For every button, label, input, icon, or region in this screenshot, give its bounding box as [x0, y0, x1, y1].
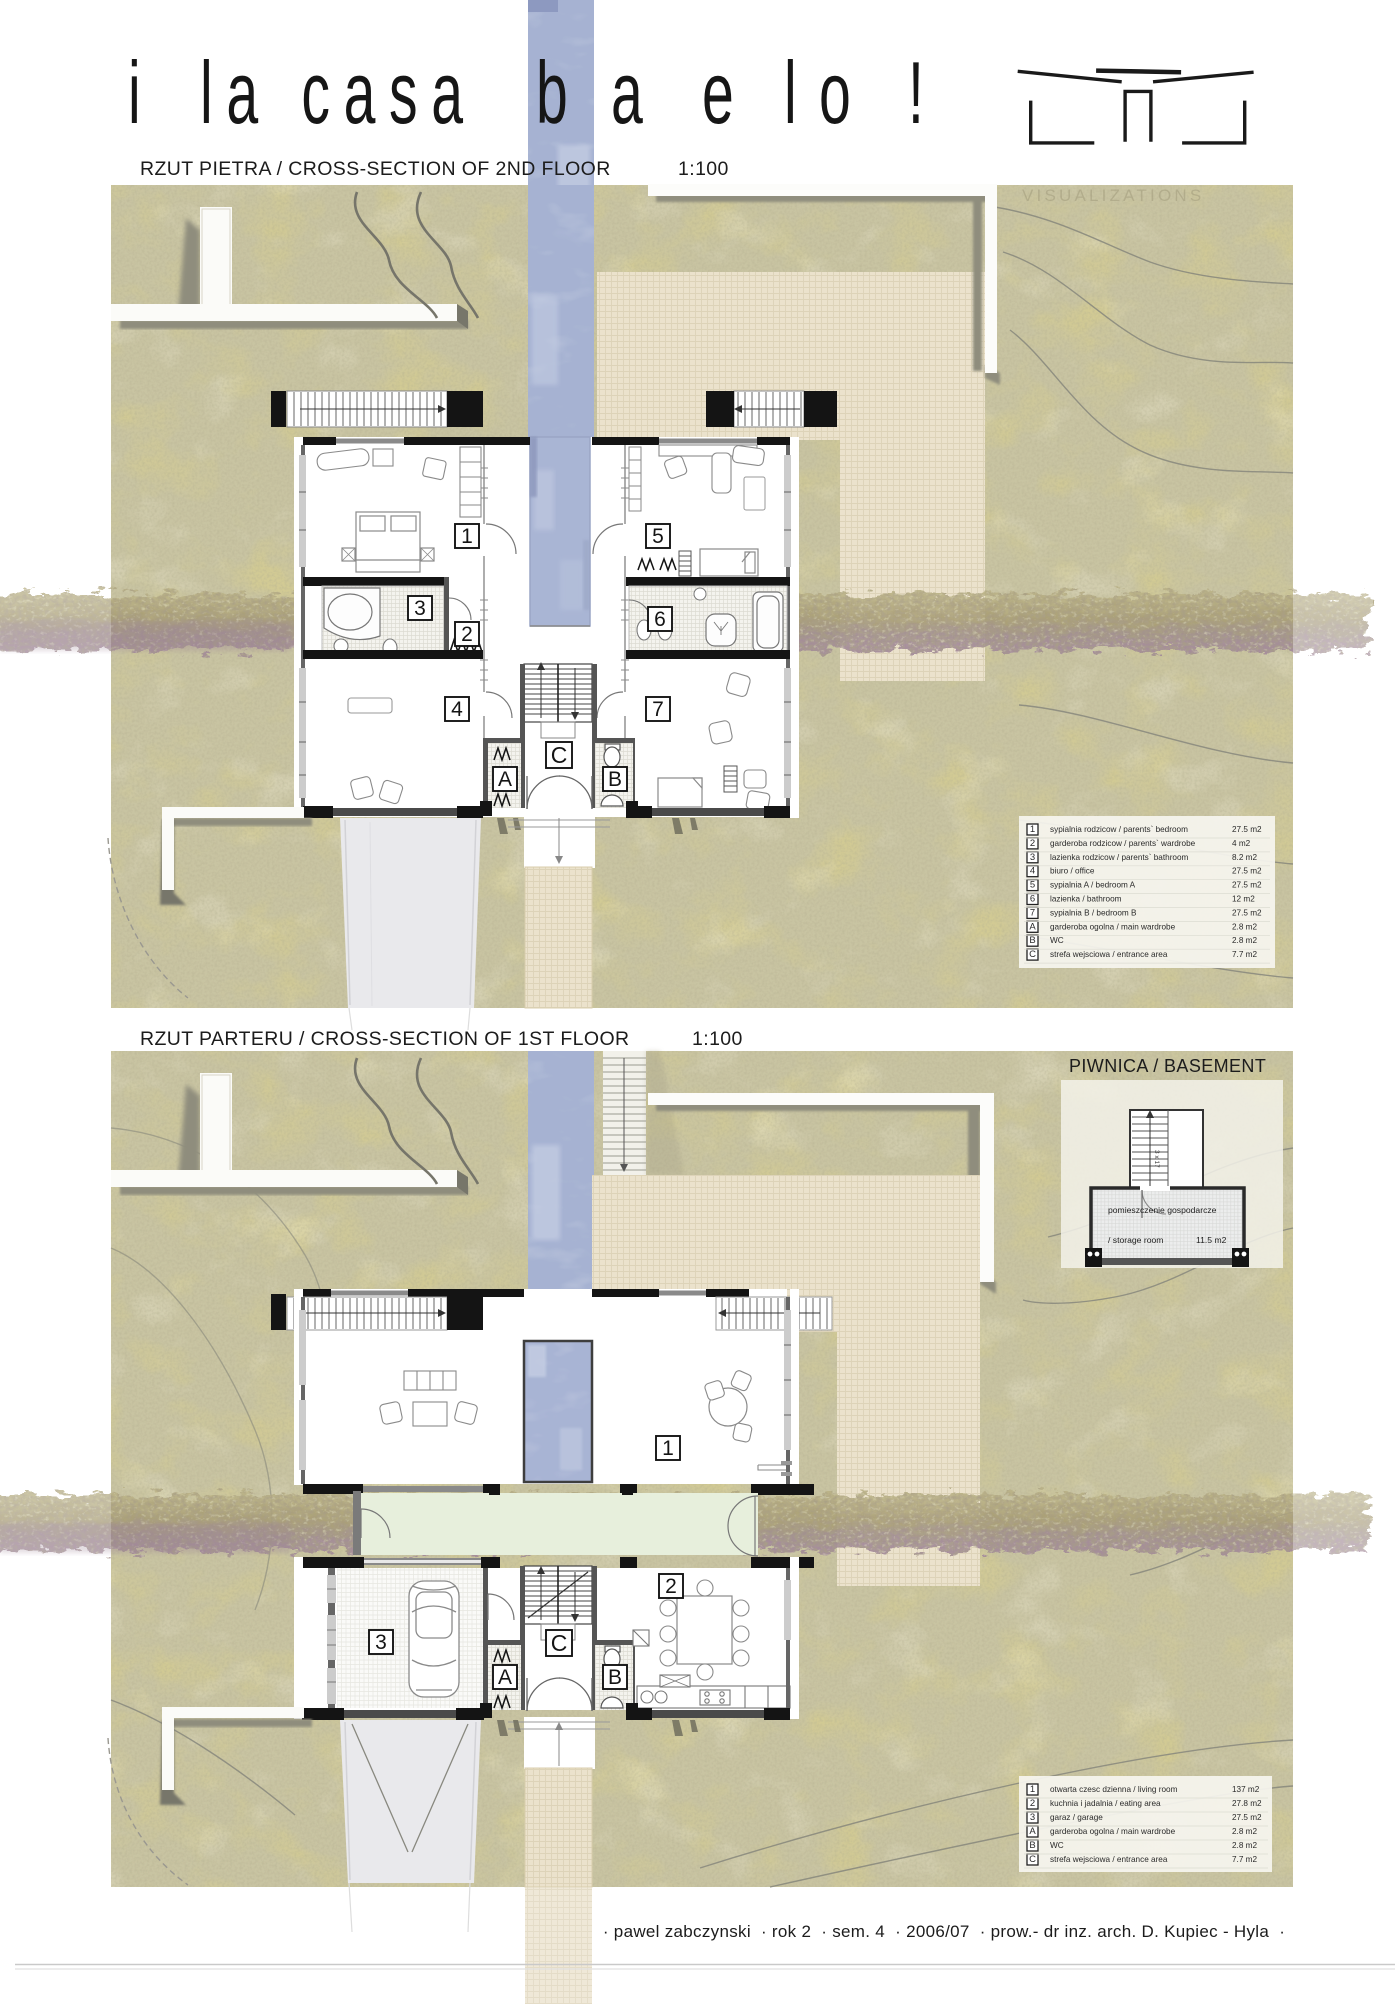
- svg-text:garaz / garage: garaz / garage: [1050, 1813, 1103, 1822]
- svg-text:2: 2: [1030, 838, 1035, 849]
- svg-text:C: C: [1029, 949, 1036, 960]
- svg-text:/ storage room: / storage room: [1108, 1235, 1163, 1245]
- svg-text:B: B: [1029, 935, 1035, 946]
- svg-text:137 m2: 137 m2: [1232, 1785, 1260, 1794]
- svg-text:· pawel zabczynski · rok 2 ·: · pawel zabczynski · rok 2 · sem. 4 · 20…: [603, 1922, 1285, 1941]
- svg-text:27.5 m2: 27.5 m2: [1232, 867, 1262, 876]
- svg-text:2.8 m2: 2.8 m2: [1232, 1841, 1257, 1850]
- svg-text:lazienka rodzicow / parents` b: lazienka rodzicow / parents` bathroom: [1050, 853, 1189, 862]
- svg-text:3: 3: [1030, 852, 1035, 863]
- svg-text:biuro / office: biuro / office: [1050, 867, 1095, 876]
- svg-text:A: A: [1029, 1826, 1036, 1837]
- svg-text:6: 6: [1030, 894, 1035, 905]
- svg-text:4: 4: [451, 698, 463, 721]
- svg-text:kuchnia i jadalnia / eating ar: kuchnia i jadalnia / eating area: [1050, 1799, 1161, 1808]
- svg-text:B: B: [608, 768, 622, 791]
- svg-text:2.8 m2: 2.8 m2: [1232, 1827, 1257, 1836]
- svg-text:3 x 17: 3 x 17: [1153, 1150, 1160, 1168]
- svg-text:VISUALIZATIONS: VISUALIZATIONS: [1022, 186, 1204, 205]
- svg-text:1: 1: [1030, 824, 1035, 835]
- svg-text:1:100: 1:100: [678, 158, 729, 180]
- svg-text:C: C: [551, 742, 568, 768]
- svg-text:garderoba ogolna / main wardro: garderoba ogolna / main wardrobe: [1050, 1827, 1176, 1836]
- svg-text:o: o: [819, 44, 851, 142]
- svg-text:7: 7: [652, 698, 664, 721]
- svg-text:2: 2: [461, 623, 473, 646]
- svg-text:12 m2: 12 m2: [1232, 895, 1255, 904]
- svg-text:strefa wejsciowa / entrance ar: strefa wejsciowa / entrance area: [1050, 1855, 1168, 1864]
- svg-text:3: 3: [414, 597, 426, 620]
- svg-text:otwarta czesc dzienna / living: otwarta czesc dzienna / living room: [1050, 1785, 1178, 1794]
- svg-text:1: 1: [461, 525, 473, 548]
- svg-text:6: 6: [654, 608, 666, 631]
- svg-text:PIWNICA / BASEMENT: PIWNICA / BASEMENT: [1069, 1056, 1266, 1076]
- svg-text:garderoba ogolna / main wardro: garderoba ogolna / main wardrobe: [1050, 922, 1176, 931]
- svg-text:WC: WC: [1050, 1841, 1064, 1850]
- svg-text:5: 5: [1030, 880, 1035, 891]
- svg-text:2.8 m2: 2.8 m2: [1232, 922, 1257, 931]
- svg-text:b: b: [536, 44, 568, 142]
- svg-text:7: 7: [1030, 907, 1035, 918]
- svg-text:2.8 m2: 2.8 m2: [1232, 936, 1257, 945]
- svg-text:4: 4: [1030, 866, 1035, 877]
- svg-text:B: B: [608, 1666, 622, 1689]
- svg-text:B: B: [1029, 1840, 1035, 1851]
- svg-text:C: C: [1029, 1854, 1036, 1865]
- svg-text:WC: WC: [1050, 936, 1064, 945]
- svg-text:strefa wejsciowa / entrance ar: strefa wejsciowa / entrance area: [1050, 950, 1168, 959]
- svg-text:a: a: [611, 44, 643, 142]
- svg-text:sypialnia B / bedroom B: sypialnia B / bedroom B: [1050, 908, 1137, 917]
- svg-text:27.5 m2: 27.5 m2: [1232, 1813, 1262, 1822]
- svg-text:2: 2: [1030, 1798, 1035, 1809]
- svg-text:lazienka / bathroom: lazienka / bathroom: [1050, 895, 1122, 904]
- svg-text:3: 3: [1030, 1812, 1035, 1823]
- svg-text:1:100: 1:100: [692, 1028, 743, 1050]
- svg-text:pomieszczenie gospodarcze: pomieszczenie gospodarcze: [1108, 1205, 1217, 1215]
- svg-text:1: 1: [662, 1437, 674, 1460]
- svg-text:11.5 m2: 11.5 m2: [1196, 1235, 1227, 1245]
- svg-text:3: 3: [375, 1631, 387, 1654]
- svg-text:l: l: [784, 44, 797, 142]
- svg-text:e: e: [702, 44, 734, 142]
- svg-text:C: C: [551, 1630, 568, 1656]
- svg-text:1: 1: [1030, 1784, 1035, 1795]
- svg-text:8.2 m2: 8.2 m2: [1232, 853, 1257, 862]
- svg-text:27.5 m2: 27.5 m2: [1232, 908, 1262, 917]
- svg-text:7.7 m2: 7.7 m2: [1232, 950, 1257, 959]
- svg-text:5: 5: [652, 525, 664, 548]
- svg-text:RZUT PIETRA / CROSS-SECTION OF: RZUT PIETRA / CROSS-SECTION OF 2ND FLOOR: [140, 158, 611, 180]
- svg-text:27.5 m2: 27.5 m2: [1232, 825, 1262, 834]
- svg-text:27.5 m2: 27.5 m2: [1232, 881, 1262, 890]
- svg-text:A: A: [498, 1666, 512, 1689]
- svg-text:2: 2: [665, 1575, 677, 1598]
- svg-text:sypialnia A / bedroom A: sypialnia A / bedroom A: [1050, 881, 1136, 890]
- svg-text:7.7 m2: 7.7 m2: [1232, 1855, 1257, 1864]
- svg-text:4 m2: 4 m2: [1232, 839, 1251, 848]
- svg-text:i: i: [128, 44, 141, 142]
- svg-text:27.8 m2: 27.8 m2: [1232, 1799, 1262, 1808]
- svg-text:la casa: la casa: [200, 44, 477, 142]
- svg-text:garderoba rodzicow / parents`: garderoba rodzicow / parents` wardrobe: [1050, 839, 1196, 848]
- svg-text:RZUT PARTERU / CROSS-SECTION O: RZUT PARTERU / CROSS-SECTION OF 1ST FLOO…: [140, 1028, 630, 1050]
- svg-text:A: A: [1029, 921, 1036, 932]
- svg-text:A: A: [498, 768, 512, 791]
- svg-text:!: !: [908, 44, 924, 142]
- svg-text:sypialnia rodzicow / parents`: sypialnia rodzicow / parents` bedroom: [1050, 825, 1188, 834]
